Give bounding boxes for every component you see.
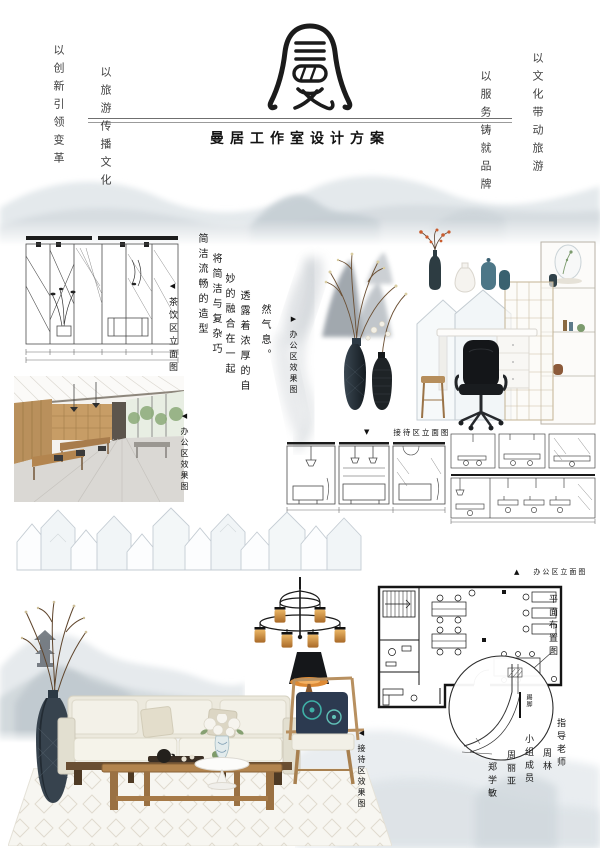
- credit-team-label: 小组成员: [522, 734, 535, 786]
- office-render-photo: [14, 376, 184, 502]
- down-arrow-icon: ▼: [364, 429, 369, 436]
- vases-with-branches: [322, 246, 414, 414]
- caption-reception-render: ◀ 接待区效果图: [356, 730, 367, 810]
- detail-label: 踢脚: [524, 694, 533, 708]
- office-collage-illustration: [413, 228, 600, 435]
- up-arrow-icon: ▲: [514, 569, 519, 576]
- description-col-1: 简洁流畅的造型: [194, 233, 209, 338]
- poster-board: 曼居工作室设计方案 以创新引领变革 以旅游传播文化 以服务铸就品牌 以文化带动旅…: [0, 0, 600, 848]
- left-arrow-icon: ◀: [170, 283, 175, 290]
- credit-member-2: 郑学敏: [485, 762, 498, 801]
- caption-dining-elevation: ◀ 茶饮区立面图: [166, 283, 179, 375]
- slogan-left-inner: 以旅游传播文化: [97, 66, 113, 192]
- screen-panels-row: [15, 500, 367, 574]
- left-arrow-icon: ◀: [182, 413, 187, 420]
- caption-text: 办公区立面图: [533, 567, 587, 577]
- detail-leader-bar: [519, 692, 521, 718]
- title-divider: [88, 118, 512, 123]
- right-arrow-icon: ▶: [291, 316, 296, 323]
- credit-advisor-label: 指导老师: [554, 718, 567, 770]
- caption-office-elevation: ▲ 办公区立面图: [514, 567, 587, 577]
- side-table-flowers: [188, 714, 258, 792]
- caption-text: 办公区效果图: [179, 427, 190, 493]
- left-arrow-icon: ◀: [359, 730, 364, 737]
- caption-reception-elevation: ▼ 接待区立面图: [364, 427, 450, 438]
- description-col-3: 妙的融合在一起: [221, 273, 236, 378]
- slogan-right-inner: 以服务铸就品牌: [477, 70, 493, 196]
- caption-text: 办公区效果图: [288, 330, 299, 396]
- office-elevation-drawings: [450, 430, 598, 524]
- caption-office-render-right: ▶ 办公区效果图: [288, 316, 299, 396]
- slogan-left-outer: 以创新引领变革: [50, 44, 66, 170]
- caption-text: 接待区效果图: [356, 744, 367, 810]
- caption-text: 接待区立面图: [393, 427, 450, 438]
- elevation-drawing-topleft: [24, 234, 182, 368]
- caption-office-render-left: ◀ 办公区效果图: [179, 413, 190, 493]
- credit-member-1: 周丽亚: [504, 750, 517, 789]
- description-col-4: 透露着浓厚的自: [236, 290, 251, 395]
- description-col-5: 然气息。: [257, 304, 272, 364]
- caption-text: 茶饮区立面图: [166, 297, 179, 375]
- poster-title: 曼居工作室设计方案: [120, 128, 480, 148]
- slogan-right-outer: 以文化带动旅游: [529, 52, 545, 178]
- credit-advisor-name: 周林: [540, 748, 553, 774]
- seal-logo: [255, 18, 365, 118]
